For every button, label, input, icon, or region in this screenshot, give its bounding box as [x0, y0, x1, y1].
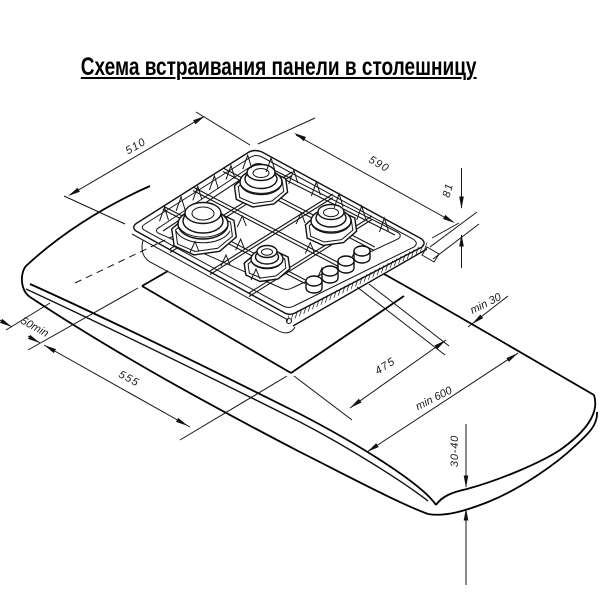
- svg-text:590: 590: [366, 154, 391, 175]
- svg-text:50min: 50min: [18, 315, 50, 340]
- svg-text:510: 510: [123, 136, 148, 157]
- svg-text:475: 475: [373, 355, 398, 377]
- svg-text:30-40: 30-40: [449, 435, 461, 467]
- svg-text:555: 555: [116, 369, 141, 390]
- svg-text:81: 81: [441, 182, 456, 199]
